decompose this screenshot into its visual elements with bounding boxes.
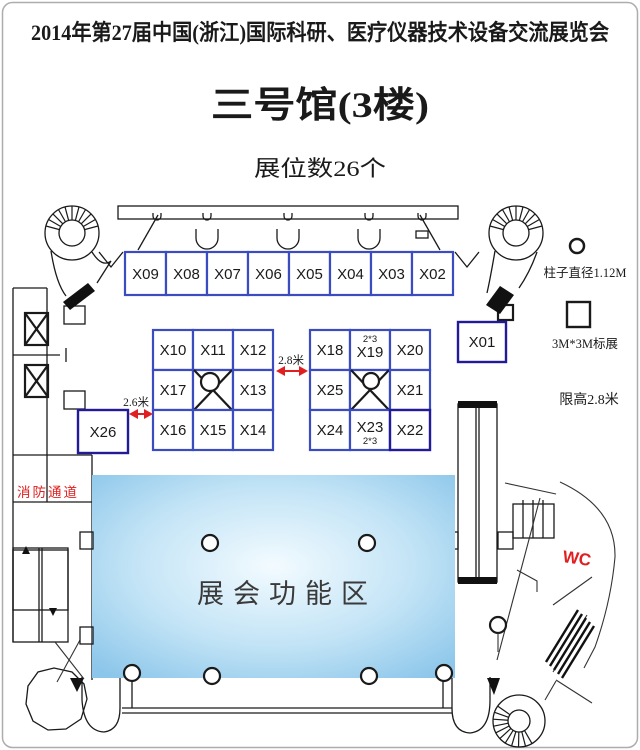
booth-x15: X15 — [193, 410, 233, 450]
booth-block-left: X10 X11 X12 X17 X13 X16 X15 X14 — [153, 330, 273, 450]
legend: 柱子直径1.12M 3M*3M标展 限高2.8米 — [544, 239, 627, 408]
pillar-icon — [201, 373, 219, 391]
diagonal-stair-icon — [546, 610, 594, 678]
staircase-icon — [13, 546, 84, 682]
page-title: 2014年第27届中国(浙江)国际科研、医疗仪器技术设备交流展览会 — [31, 20, 609, 45]
stairs-right-icon — [513, 500, 554, 538]
pillar-icon — [490, 617, 506, 633]
pillar-legend-label: 柱子直径1.12M — [544, 265, 627, 280]
blocked-cell-right — [350, 370, 390, 410]
function-area: 展会功能区 — [80, 475, 455, 684]
pillar-icon — [204, 668, 220, 684]
booth-x17: X17 — [153, 370, 193, 410]
svg-text:X16: X16 — [160, 422, 187, 439]
pillar-icon — [202, 535, 218, 551]
svg-text:X21: X21 — [397, 382, 424, 399]
spiral-stair-bottom-right-icon — [493, 681, 556, 747]
booth-block-right: X18 2*3X19 X20 X25 X21 X24 X232*3 X22 — [310, 330, 430, 450]
svg-text:X22: X22 — [397, 422, 424, 439]
booth-row-top: X09 X08 X07 X06 X05 X04 X03 X02 — [125, 252, 453, 295]
svg-text:X15: X15 — [200, 422, 227, 439]
booth-x08: X08 — [166, 252, 207, 295]
spiral-stair-top-right-icon — [487, 206, 543, 293]
booth-x23: X232*3 — [350, 410, 390, 450]
booth-x14: X14 — [233, 410, 273, 450]
pillar-icon — [361, 668, 377, 684]
pillar-icon — [363, 373, 379, 389]
booth-x05: X05 — [289, 252, 330, 295]
round-structure-bottom-left — [26, 668, 87, 730]
height-limit-label: 限高2.8米 — [559, 391, 619, 408]
booth-x19: 2*3X19 — [350, 330, 390, 370]
fire-lane-label: 消防通道 — [17, 485, 79, 500]
booth-x22: X22 — [390, 410, 430, 450]
svg-text:X25: X25 — [317, 382, 344, 399]
booth-x07: X07 — [207, 252, 248, 295]
svg-text:X02: X02 — [419, 266, 446, 283]
pillar-icon — [359, 535, 375, 551]
svg-text:X26: X26 — [90, 424, 117, 441]
spiral-stair-top-left-icon — [45, 206, 111, 296]
wc-area-walls — [490, 482, 615, 703]
svg-text:X06: X06 — [255, 266, 282, 283]
wc-label: WC — [562, 547, 593, 570]
booth-x12: X12 — [233, 330, 273, 370]
svg-text:2.8米: 2.8米 — [278, 354, 304, 367]
svg-text:X07: X07 — [214, 266, 241, 283]
booth-x04: X04 — [330, 252, 371, 295]
svg-text:X23: X23 — [357, 419, 384, 436]
svg-text:X13: X13 — [240, 382, 267, 399]
svg-text:X03: X03 — [378, 266, 405, 283]
booth-x11: X11 — [193, 330, 233, 370]
booth-x20: X20 — [390, 330, 430, 370]
function-area-label: 展会功能区 — [197, 579, 377, 609]
svg-text:X09: X09 — [132, 266, 159, 283]
svg-text:X12: X12 — [240, 342, 267, 359]
booth-x01: X01 — [458, 322, 506, 362]
standard-booth-legend-label: 3M*3M标展 — [552, 337, 618, 351]
booth-count-label: 展位数26个 — [254, 156, 386, 181]
svg-text:X04: X04 — [337, 266, 364, 283]
svg-text:2*3: 2*3 — [363, 436, 377, 447]
svg-text:X05: X05 — [296, 266, 323, 283]
hall-title: 三号馆(3楼) — [211, 85, 429, 125]
svg-text:X10: X10 — [160, 342, 187, 359]
booth-x10: X10 — [153, 330, 193, 370]
svg-text:X20: X20 — [397, 342, 424, 359]
booth-x26: X26 — [78, 410, 128, 453]
standard-booth-legend-icon — [567, 302, 590, 327]
booth-x09: X09 — [125, 252, 166, 295]
pillar-icon — [436, 665, 452, 681]
pillar-icon — [124, 665, 140, 681]
booth-x02: X02 — [412, 252, 453, 295]
svg-text:2.6米: 2.6米 — [123, 396, 149, 409]
booth-x13: X13 — [233, 370, 273, 410]
booth-x24: X24 — [310, 410, 350, 450]
aisle-arrow-right: 2.8米 — [276, 354, 308, 376]
blocked-cell-left — [193, 370, 233, 410]
svg-text:X17: X17 — [160, 382, 187, 399]
svg-text:X01: X01 — [469, 334, 496, 351]
pillar-legend-icon — [570, 239, 584, 253]
floor-plan: 2014年第27届中国(浙江)国际科研、医疗仪器技术设备交流展览会 三号馆(3楼… — [0, 0, 640, 750]
svg-text:X18: X18 — [317, 342, 344, 359]
booth-x25: X25 — [310, 370, 350, 410]
svg-text:X24: X24 — [317, 422, 344, 439]
booth-x03: X03 — [371, 252, 412, 295]
svg-text:X14: X14 — [240, 422, 267, 439]
booth-x21: X21 — [390, 370, 430, 410]
svg-text:X19: X19 — [357, 344, 384, 361]
booth-x06: X06 — [248, 252, 289, 295]
booth-x18: X18 — [310, 330, 350, 370]
svg-text:X08: X08 — [173, 266, 200, 283]
booth-x16: X16 — [153, 410, 193, 450]
svg-text:X11: X11 — [200, 342, 226, 359]
